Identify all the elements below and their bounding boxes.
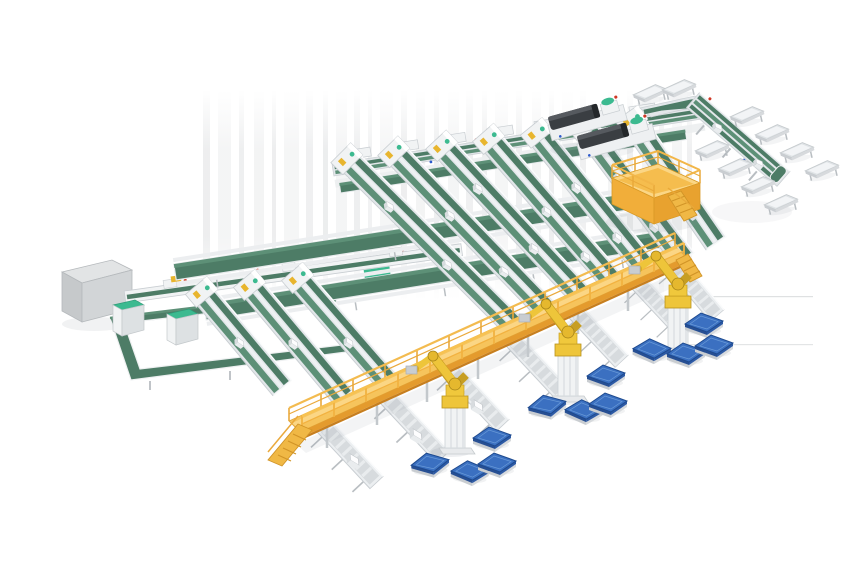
loop-cabinet bbox=[167, 309, 198, 345]
pallet bbox=[685, 313, 723, 338]
pack-chute bbox=[779, 140, 816, 165]
pack-chute bbox=[729, 104, 766, 129]
factory-render bbox=[0, 0, 860, 580]
pallet bbox=[473, 427, 511, 452]
loop-cabinet bbox=[113, 300, 144, 336]
factory-render-canvas bbox=[0, 0, 860, 580]
pallet bbox=[587, 365, 625, 390]
pack-chute bbox=[763, 192, 800, 217]
pallet bbox=[632, 338, 672, 366]
pack-chute bbox=[804, 158, 841, 183]
pack-chute bbox=[754, 122, 791, 147]
pack-chute bbox=[694, 138, 731, 163]
